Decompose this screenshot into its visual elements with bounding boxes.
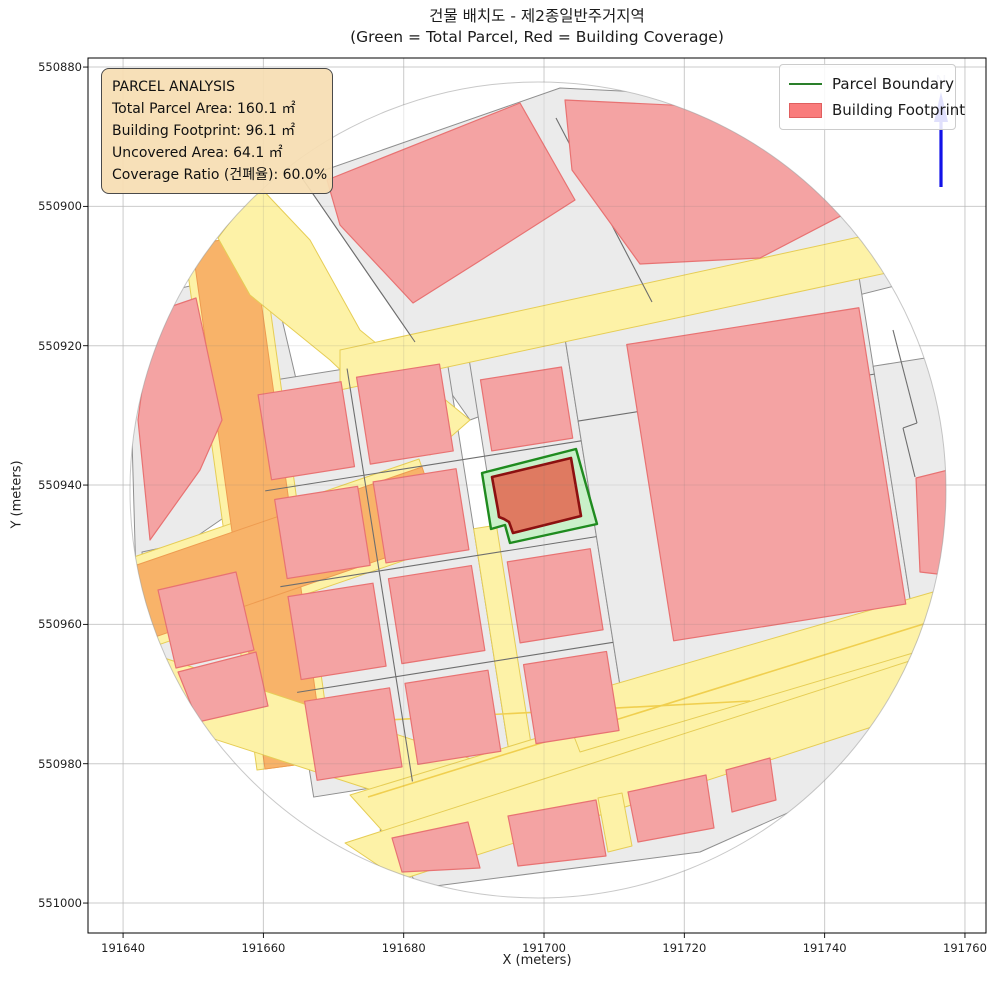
- map-building: [288, 583, 386, 679]
- parcel-boundary-line-swatch: [789, 83, 822, 85]
- map-building: [916, 470, 948, 575]
- y-tick-label: 551000: [4, 896, 82, 910]
- y-tick-label: 550940: [4, 478, 82, 492]
- parcel-analysis-box: PARCEL ANALYSIS Total Parcel Area: 160.1…: [101, 68, 333, 194]
- x-tick-label: 191720: [662, 941, 706, 955]
- y-tick-label: 550920: [4, 339, 82, 353]
- map-building: [405, 670, 501, 764]
- legend-label: Parcel Boundary: [832, 75, 954, 93]
- legend-label: Building Footprint: [832, 101, 965, 119]
- title-line-2: (Green = Total Parcel, Red = Building Co…: [350, 27, 724, 48]
- parcel-analysis-line: Uncovered Area: 64.1 ㎡: [112, 142, 322, 164]
- y-tick-label: 550880: [4, 60, 82, 74]
- parcel-analysis-line: Total Parcel Area: 160.1 ㎡: [112, 98, 322, 120]
- map-building: [627, 308, 906, 641]
- map-building: [305, 688, 402, 780]
- y-tick-label: 550900: [4, 199, 82, 213]
- x-tick-label: 191680: [382, 941, 426, 955]
- map-building: [357, 364, 454, 464]
- map-building: [480, 367, 572, 451]
- y-tick-label: 550960: [4, 617, 82, 631]
- map-building: [507, 549, 603, 643]
- parcel-analysis-line: Building Footprint: 96.1 ㎡: [112, 120, 322, 142]
- map-building: [258, 382, 354, 480]
- map-building: [524, 651, 619, 743]
- title-line-1: 건물 배치도 - 제2종일반주거지역: [350, 6, 724, 27]
- map-building: [388, 566, 484, 664]
- x-tick-label: 191740: [803, 941, 847, 955]
- map-building: [373, 469, 469, 563]
- x-tick-label: 191700: [522, 941, 566, 955]
- legend-item-building-footprint: Building Footprint: [789, 97, 945, 123]
- map-building: [275, 486, 370, 578]
- building-footprint-patch-swatch: [789, 103, 822, 118]
- legend: Parcel Boundary Building Footprint: [779, 64, 956, 130]
- parcel-analysis-title: PARCEL ANALYSIS: [112, 76, 322, 98]
- chart-title: 건물 배치도 - 제2종일반주거지역 (Green = Total Parcel…: [350, 6, 724, 48]
- y-tick-label: 550980: [4, 757, 82, 771]
- legend-item-parcel-boundary: Parcel Boundary: [789, 71, 945, 97]
- x-tick-label: 191760: [943, 941, 987, 955]
- y-axis-label: Y (meters): [10, 455, 25, 535]
- x-tick-label: 191640: [101, 941, 145, 955]
- x-tick-label: 191660: [241, 941, 285, 955]
- figure: N 건물 배치도 - 제2종일반주거지역 (Green = Total Parc…: [0, 0, 998, 990]
- parcel-analysis-line: Coverage Ratio (건폐율): 60.0%: [112, 164, 322, 186]
- x-axis-label: X (meters): [502, 953, 571, 968]
- map-building: [158, 572, 254, 668]
- map-layer: [93, 82, 978, 898]
